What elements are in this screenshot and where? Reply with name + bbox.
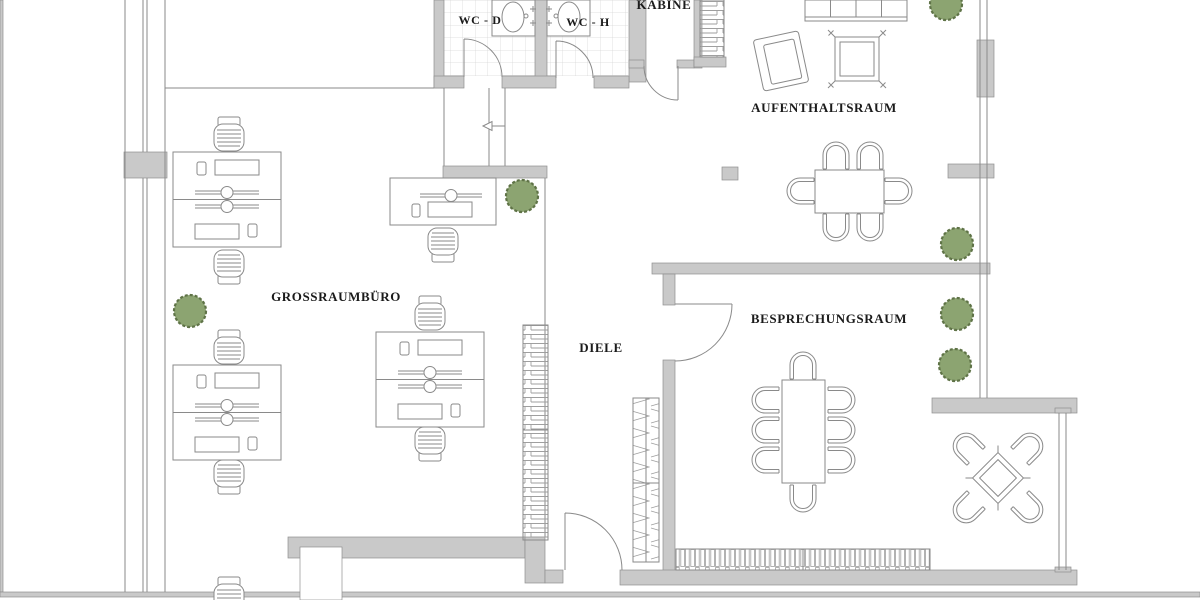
plant-icon — [174, 295, 206, 327]
window-glazing-lines — [125, 0, 1066, 592]
floor-plan-drawing: WC - D WC - H KABINE AUFENTHALTSRAUM GRO… — [0, 0, 1200, 600]
room-label-wc-d: WC - D — [459, 13, 502, 27]
lounge-group — [916, 396, 1080, 560]
desk-pair — [173, 365, 281, 460]
wall-opening — [300, 547, 342, 600]
armchair — [753, 31, 809, 91]
single-desk — [390, 178, 496, 225]
desk-pair — [173, 152, 281, 247]
room-label-diele: DIELE — [579, 340, 622, 355]
room-label-grossraumbuero: GROSSRAUMBÜRO — [271, 289, 401, 304]
floor-plan-page: WC - D WC - H KABINE AUFENTHALTSRAUM GRO… — [0, 0, 1200, 600]
door-swings — [464, 39, 732, 570]
wardrobe-strip — [633, 398, 659, 562]
plant-icon — [506, 180, 538, 212]
stairs-strip-top — [700, 0, 724, 57]
walls — [0, 0, 1200, 597]
room-label-kabine: KABINE — [637, 0, 692, 12]
corridor-arrow — [483, 122, 505, 131]
radiator — [676, 549, 930, 570]
room-label-wc-h: WC - H — [566, 15, 610, 29]
plant-icon — [930, 0, 962, 20]
conference-table — [782, 380, 825, 483]
dining-table — [815, 170, 884, 213]
desk-pair — [376, 332, 484, 427]
room-label-besprechungsraum: BESPRECHUNGSRAUM — [751, 311, 907, 326]
plant-icon — [941, 298, 973, 330]
plant-icon — [941, 228, 973, 260]
room-label-aufenthaltsraum: AUFENTHALTSRAUM — [751, 100, 897, 115]
shelf-strip-diele — [523, 325, 548, 540]
coffee-table — [828, 30, 886, 88]
sofa — [805, 0, 907, 21]
plant-icon — [939, 349, 971, 381]
